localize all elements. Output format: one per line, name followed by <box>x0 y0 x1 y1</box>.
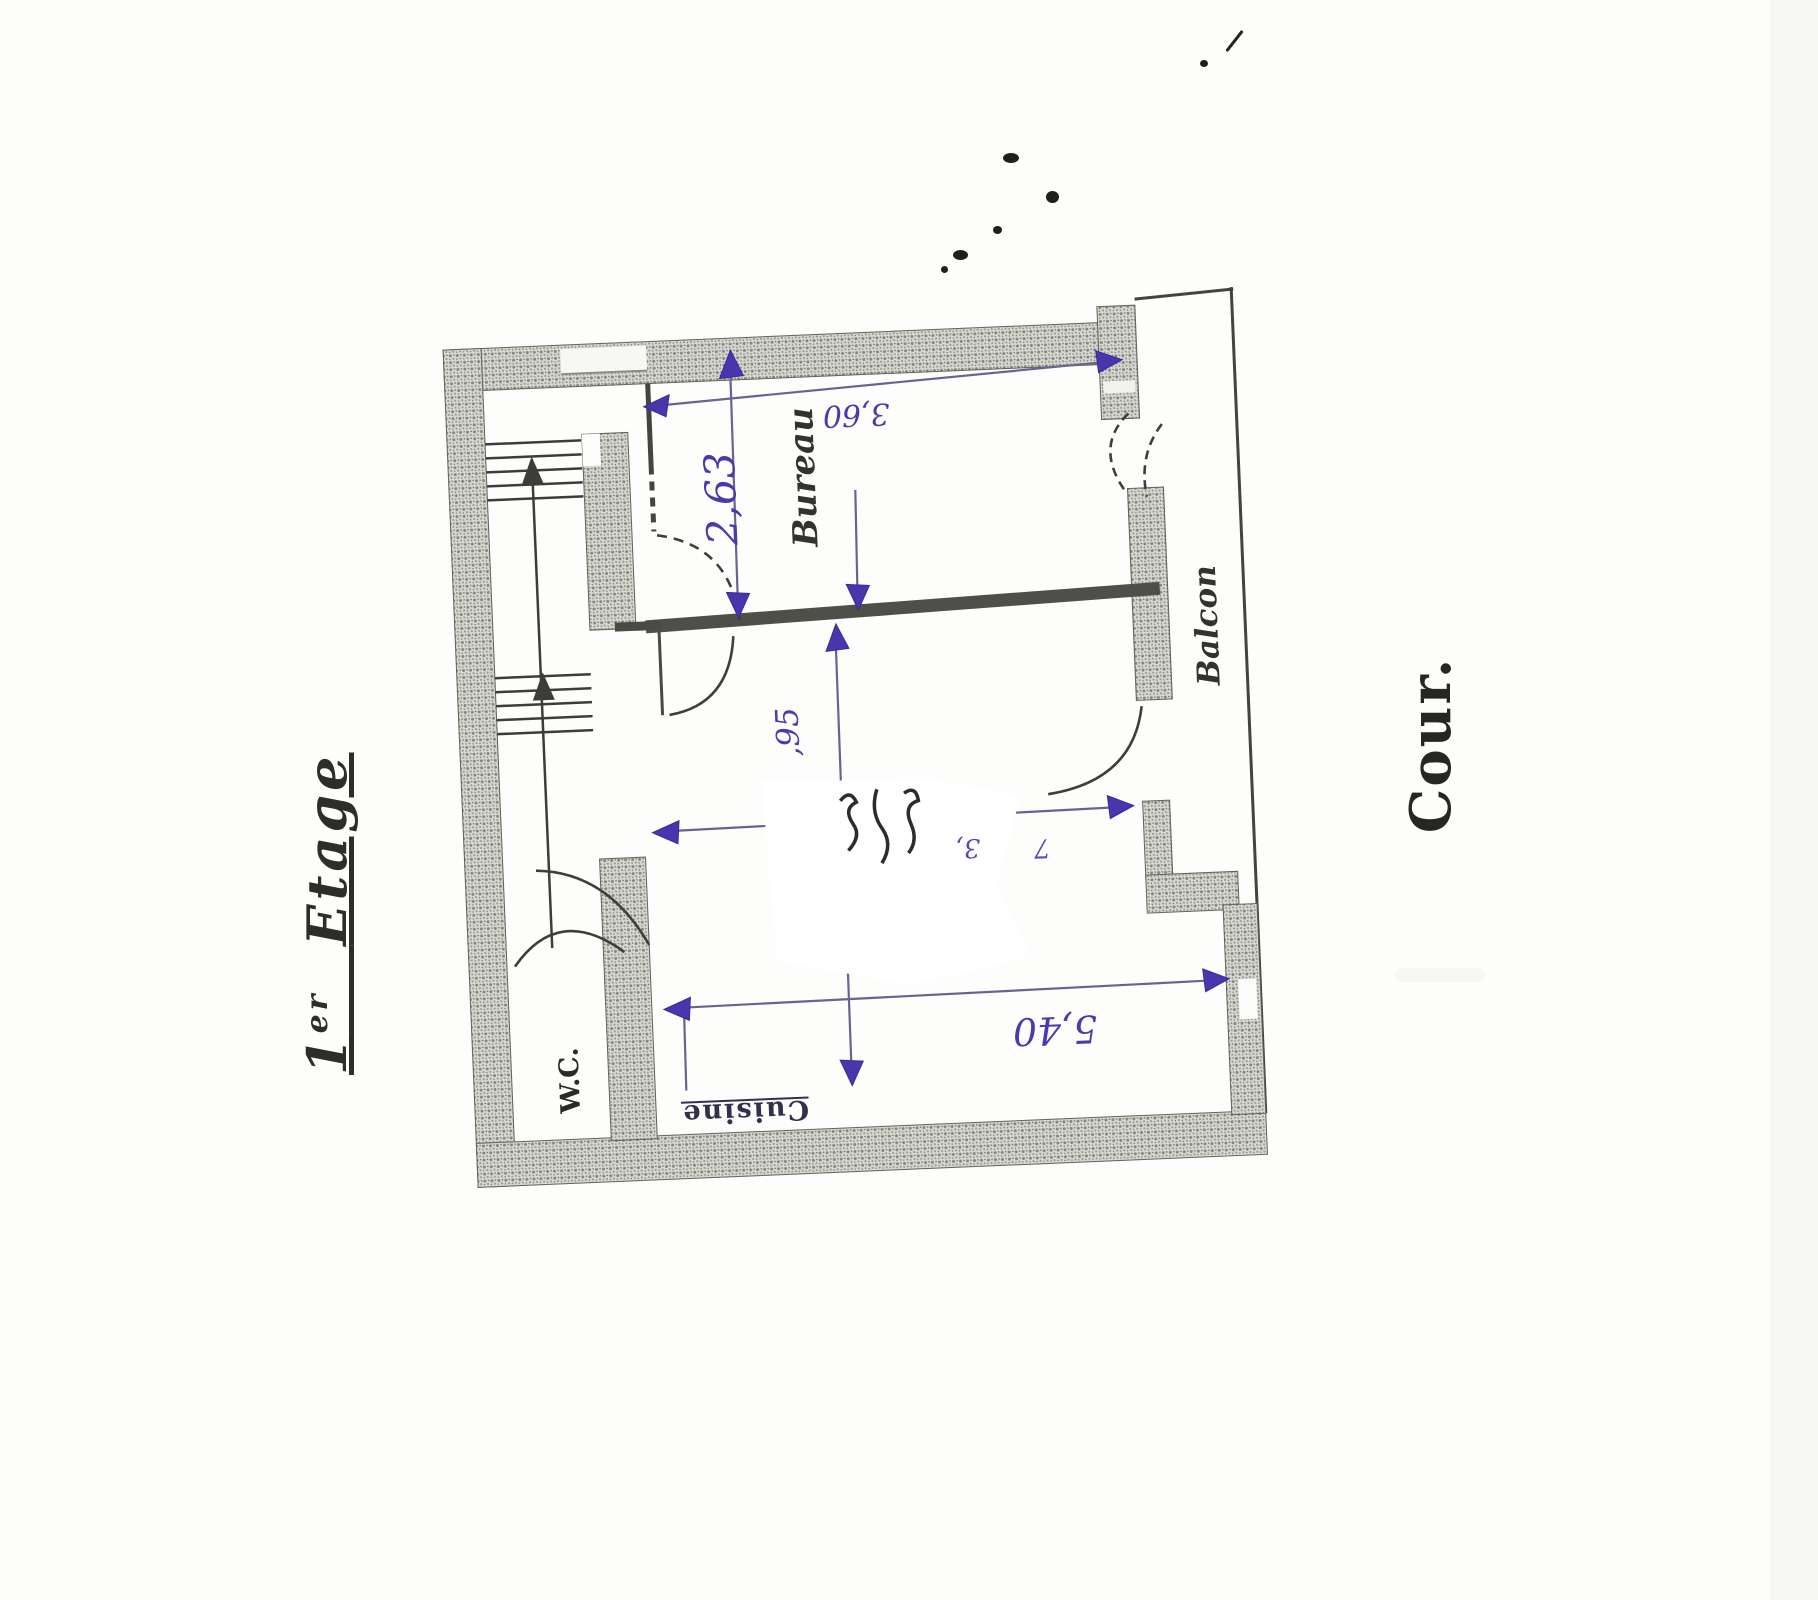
arrow-up-icon <box>825 623 849 651</box>
middle-wall <box>645 588 1160 627</box>
arrow-left-icon <box>652 821 680 845</box>
ink-speck <box>993 226 1002 234</box>
ink-speck <box>941 266 948 273</box>
floor-plan: Bureau Balcon W.C. Cuisine 2,63 3,60 ,95… <box>412 277 1309 1212</box>
bureau-partition-dashed <box>651 466 654 532</box>
top-wall <box>443 321 1132 392</box>
floor-ordinal: er <box>300 991 335 1034</box>
dimension-bureau-width: 3,60 <box>801 396 912 435</box>
room-label-balcon: Balcon <box>1186 545 1229 706</box>
ink-speck <box>1046 191 1059 203</box>
wc-wall <box>600 857 658 1141</box>
erased-dimension-fragment: 7 <box>1026 832 1051 863</box>
floor-number: 1 <box>295 1033 359 1075</box>
ink-speck <box>1200 60 1208 67</box>
arrow-down-icon <box>840 1059 864 1086</box>
arrow-left-icon <box>663 997 691 1021</box>
whiteout-patch <box>761 770 1032 991</box>
ink-speck <box>1225 30 1243 52</box>
scan-artifact <box>1395 968 1485 982</box>
french-door-arc <box>1142 424 1165 497</box>
left-wall <box>443 349 516 1188</box>
courtyard-label: Cour. <box>1398 645 1478 845</box>
floor-title: 1er Etage <box>295 635 385 1075</box>
room-label-cuisine: Cuisine <box>664 1088 825 1131</box>
balcony-door-jamb-wall <box>1143 800 1173 881</box>
dimension-hall-depth: ,95 <box>768 681 806 782</box>
bureau-partition-solid <box>648 384 651 466</box>
dimension-bureau-depth: 2,63 <box>694 438 741 560</box>
bottom-wall <box>476 1110 1267 1187</box>
entry-jog <box>615 625 661 627</box>
dimension-living-width: 5,40 <box>994 1010 1116 1055</box>
arrow-right-icon <box>1107 795 1134 819</box>
scan-artifact <box>1770 0 1818 1600</box>
hall-living-door-arc <box>666 636 736 715</box>
french-door-arc <box>1109 413 1132 492</box>
floor-word: Etage <box>295 752 359 945</box>
ink-speck <box>1003 153 1019 163</box>
scanned-floor-plan-page: 1er Etage Cour. <box>0 0 1818 1600</box>
entry-jamb <box>659 631 663 715</box>
erased-dimension-fragment: 3, <box>946 832 981 863</box>
room-label-wc: W.C. <box>553 1035 591 1126</box>
balcony-door-arc <box>1045 706 1145 794</box>
ink-speck <box>953 250 968 260</box>
